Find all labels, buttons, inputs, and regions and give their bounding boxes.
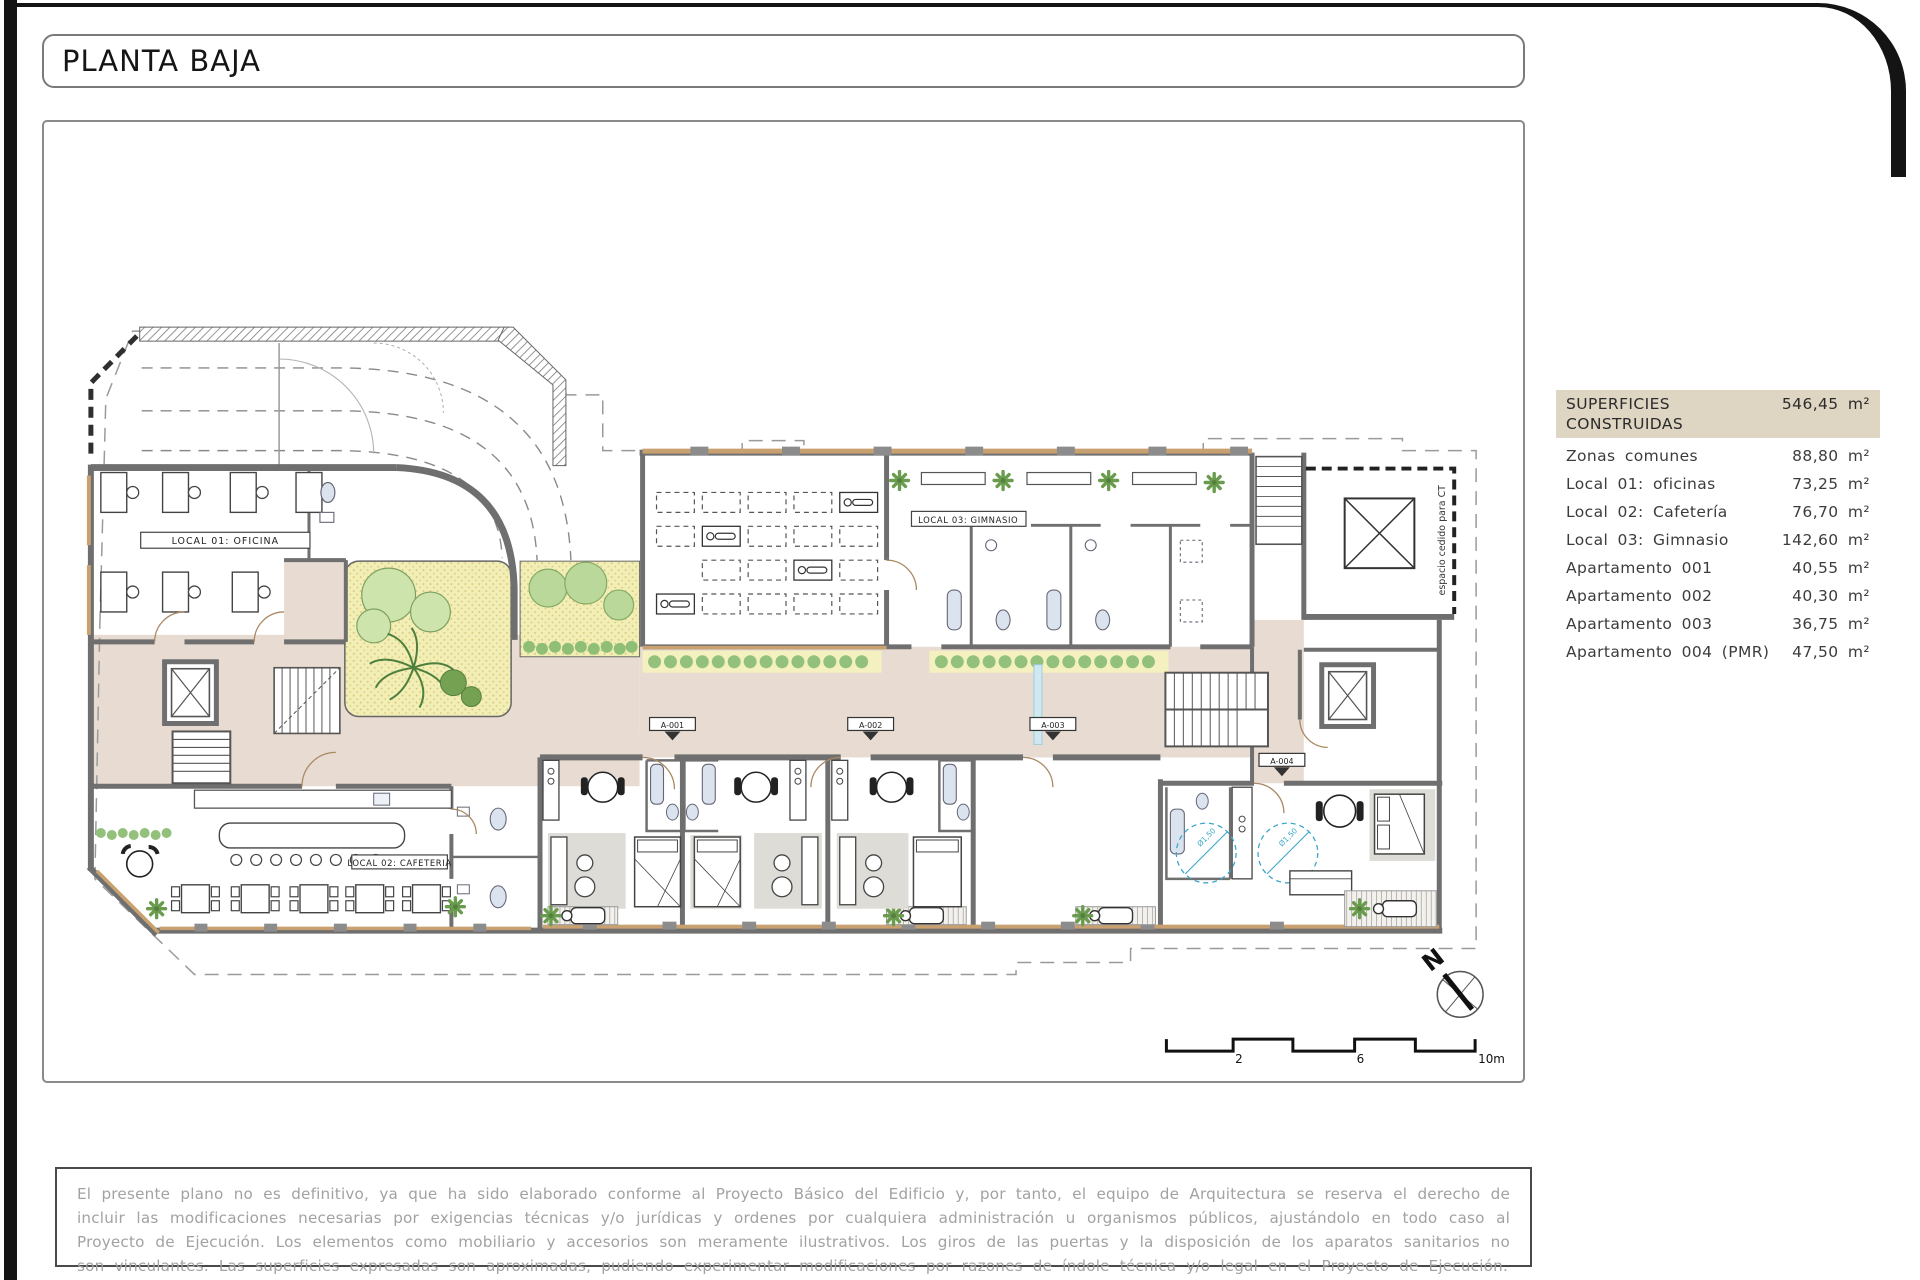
- flag-a001: A-001: [661, 721, 684, 730]
- legend-item: Local 01: oficinas73,25 m²: [1556, 470, 1880, 498]
- disclaimer-box: El presente plano no es definitivo, ya q…: [55, 1167, 1532, 1267]
- accessibility-circle: Ø1,50: [1176, 823, 1236, 883]
- office-label: LOCAL 01: OFICINA: [172, 536, 279, 547]
- stair-right: [1165, 673, 1268, 747]
- elevator-right: [1322, 665, 1374, 727]
- legend-item: Apartamento 004 (PMR)47,50 m²: [1556, 638, 1880, 666]
- elevator-left: [165, 662, 217, 724]
- scale-bar: 2 6 10m: [1166, 1039, 1505, 1066]
- legend-item: Zonas comunes88,80 m²: [1556, 442, 1880, 470]
- cafeteria-local02: LOCAL 02: CAFETERIA: [123, 790, 506, 917]
- flag-a003: A-003: [1041, 721, 1064, 730]
- page-edge-left: [4, 0, 17, 1280]
- legend-header: SUPERFICIES CONSTRUIDAS 546,45 m²: [1556, 390, 1880, 438]
- floor-plan-canvas: espacio cedido para CT: [42, 120, 1525, 1083]
- legend-item: Apartamento 00240,30 m²: [1556, 582, 1880, 610]
- plan-sheet: PLANTA BAJA: [0, 0, 1920, 1280]
- legend-item: Apartamento 00140,55 m²: [1556, 554, 1880, 582]
- page-title: PLANTA BAJA: [62, 44, 261, 78]
- garage-room: [91, 327, 566, 465]
- cafeteria-label: LOCAL 02: CAFETERIA: [347, 858, 451, 868]
- ct-area: espacio cedido para CT: [1306, 469, 1454, 614]
- legend-item: Apartamento 00336,75 m²: [1556, 610, 1880, 638]
- stair-top-right: [1256, 457, 1302, 545]
- gym-label: LOCAL 03: GIMNASIO: [918, 515, 1018, 525]
- flag-a002: A-002: [859, 721, 882, 730]
- surface-legend: SUPERFICIES CONSTRUIDAS 546,45 m² Zonas …: [1556, 390, 1880, 666]
- legend-item: Local 02: Cafetería76,70 m²: [1556, 498, 1880, 526]
- stair-center: [274, 668, 340, 734]
- apartment-003: [832, 760, 1156, 924]
- scale-10m: 10m: [1478, 1052, 1505, 1066]
- apartment-004-pmr: Ø1,50 Ø1,50: [1170, 787, 1436, 926]
- stair-left: [173, 731, 231, 783]
- ct-label: espacio cedido para CT: [1437, 485, 1448, 596]
- north-compass: N: [1417, 943, 1493, 1027]
- title-box: PLANTA BAJA: [42, 34, 1525, 88]
- scale-2: 2: [1235, 1052, 1243, 1066]
- disclaimer-text: El presente plano no es definitivo, ya q…: [77, 1185, 1510, 1275]
- flag-a004: A-004: [1270, 757, 1293, 766]
- legend-header-label: SUPERFICIES CONSTRUIDAS: [1566, 394, 1782, 434]
- legend-header-area: 546,45 m²: [1782, 394, 1870, 414]
- corridor-floor: [91, 560, 1304, 786]
- floor-plan-svg: espacio cedido para CT: [44, 122, 1523, 1081]
- gym-local03: LOCAL 03: GIMNASIO: [657, 472, 1224, 630]
- legend-item: Local 03: Gimnasio142,60 m²: [1556, 526, 1880, 554]
- scale-6: 6: [1357, 1052, 1365, 1066]
